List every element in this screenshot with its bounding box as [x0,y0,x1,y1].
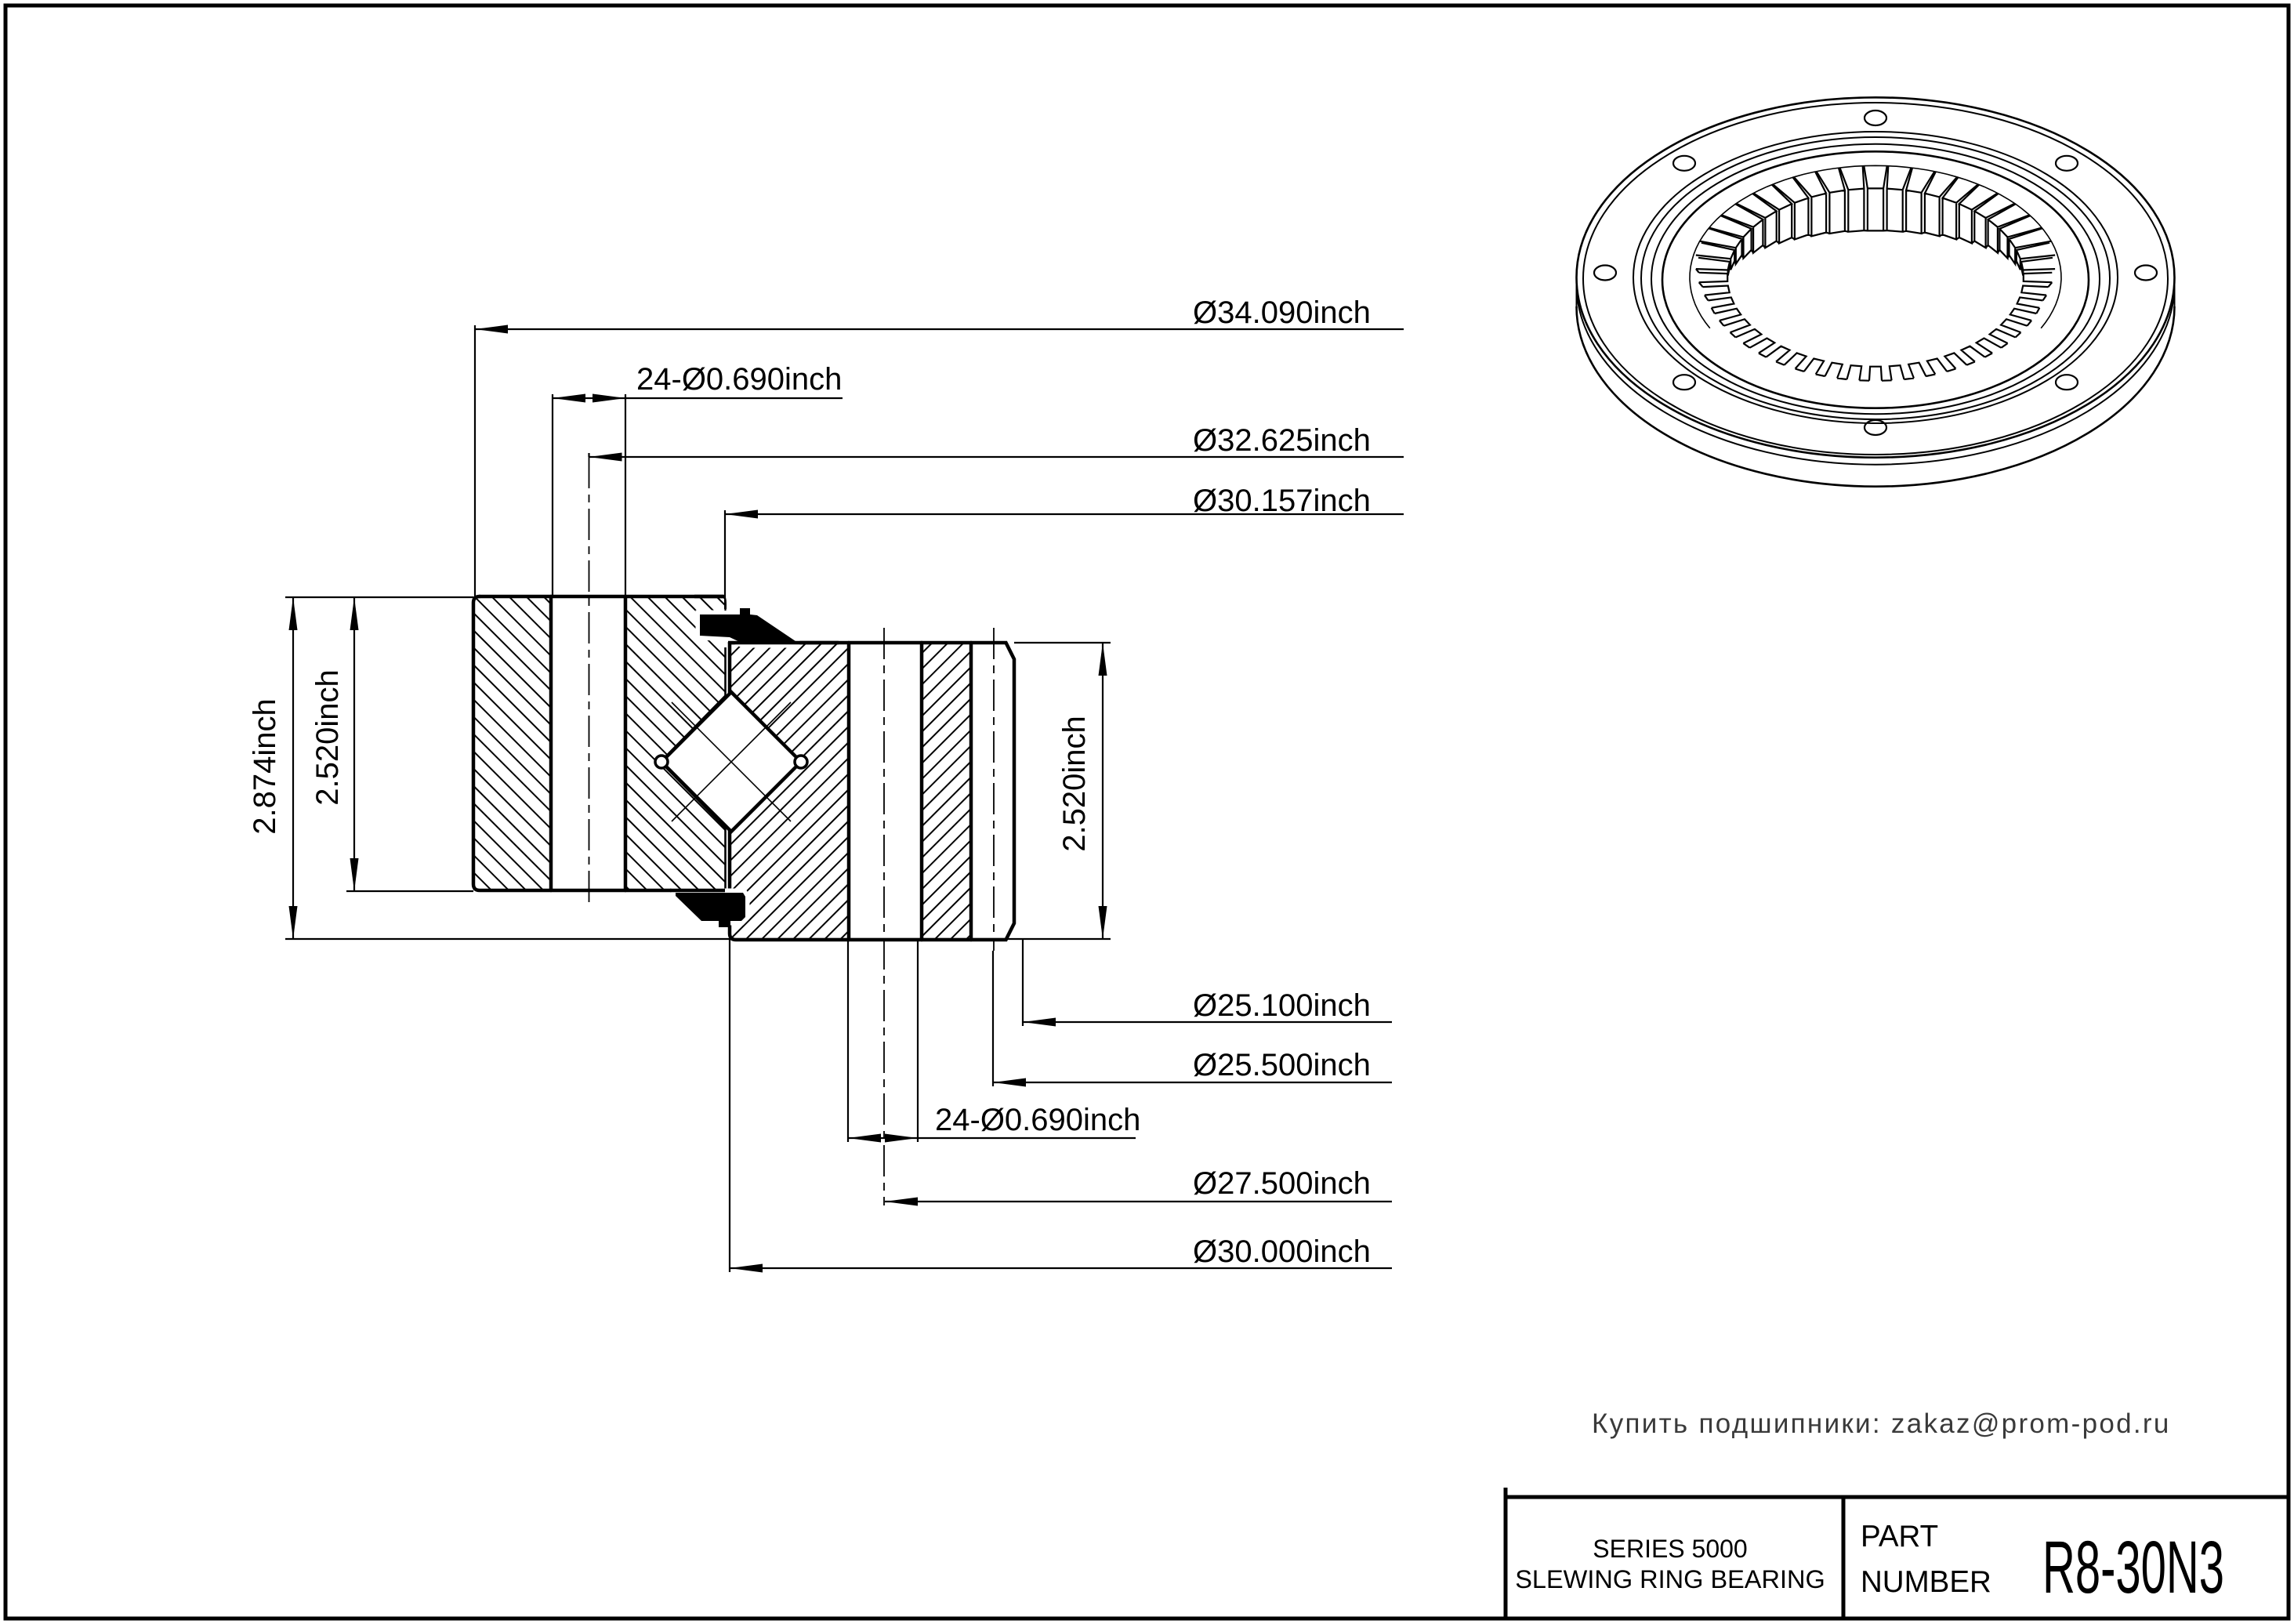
svg-text:SLEWING RING BEARING: SLEWING RING BEARING [1515,1565,1825,1593]
svg-text:NUMBER: NUMBER [1861,1565,1991,1599]
svg-text:24-Ø0.690inch: 24-Ø0.690inch [636,362,842,397]
svg-text:Ø27.500inch: Ø27.500inch [1193,1166,1371,1201]
svg-text:Ø32.625inch: Ø32.625inch [1193,423,1371,458]
svg-text:Ø25.500inch: Ø25.500inch [1193,1048,1371,1082]
svg-text:Ø34.090inch: Ø34.090inch [1193,295,1371,330]
svg-text:2.520inch: 2.520inch [1057,716,1092,851]
svg-text:Ø25.100inch: Ø25.100inch [1193,988,1371,1023]
svg-text:2.874inch: 2.874inch [248,698,282,834]
svg-text:Ø30.157inch: Ø30.157inch [1193,484,1371,518]
svg-text:R8-30N3: R8-30N3 [2042,1525,2224,1608]
svg-text:SERIES 5000: SERIES 5000 [1593,1535,1747,1563]
svg-text:Купить подшипники: zakaz@prom-: Купить подшипники: zakaz@prom-pod.ru [1592,1408,2171,1439]
svg-text:2.520inch: 2.520inch [310,669,345,805]
svg-text:24-Ø0.690inch: 24-Ø0.690inch [935,1103,1140,1137]
svg-text:Ø30.000inch: Ø30.000inch [1193,1234,1371,1269]
svg-text:PART: PART [1861,1520,1938,1553]
